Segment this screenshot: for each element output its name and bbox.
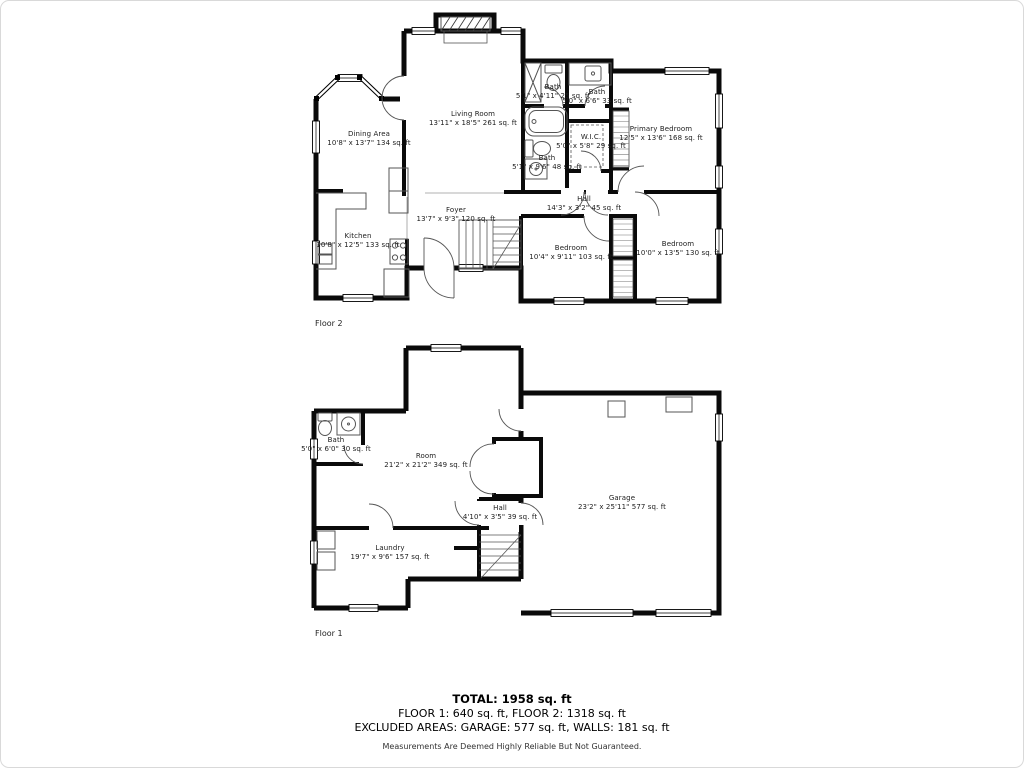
summary-total: TOTAL: 1958 sq. ft bbox=[1, 692, 1023, 706]
floor1-caption: Floor 1 bbox=[315, 629, 343, 638]
dryer-icon bbox=[317, 552, 335, 570]
room-label-bath-f1: Bath5'0" x 6'0" 30 sq. ft bbox=[301, 436, 371, 454]
floor2-caption: Floor 2 bbox=[315, 319, 343, 328]
toilet-icon bbox=[318, 413, 332, 436]
room-label-hall-f1: Hall4'10" x 3'5" 39 sq. ft bbox=[463, 504, 537, 522]
room-label-foyer: Foyer13'7" x 9'3" 120 sq. ft bbox=[417, 206, 496, 224]
room-label-kitchen: Kitchen10'8" x 12'5" 133 sq. ft bbox=[316, 232, 399, 250]
walls bbox=[314, 15, 719, 613]
washer-icon bbox=[317, 531, 335, 549]
bathtub-icon bbox=[525, 107, 567, 136]
summary-floors: FLOOR 1: 640 sq. ft, FLOOR 2: 1318 sq. f… bbox=[1, 707, 1023, 720]
room-label-bedroom-1: Bedroom10'4" x 9'11" 103 sq. ft bbox=[529, 244, 612, 262]
door-openings-2 bbox=[490, 444, 498, 493]
floorplan-page: Living Room13'11" x 18'5" 261 sq. ft Din… bbox=[0, 0, 1024, 768]
room-label-bath-48: Bath5'1" x 9'6" 48 sq. ft bbox=[512, 154, 582, 172]
room-label-bath-33: Bath5'0" x 6'6" 33 sq. ft bbox=[562, 88, 632, 106]
kitchen-counter bbox=[316, 193, 366, 269]
room-label-bedroom-2: Bedroom10'0" x 13'5" 130 sq. ft bbox=[636, 240, 719, 258]
room-label-garage: Garage23'2" x 25'11" 577 sq. ft bbox=[578, 494, 666, 512]
garage-utility-box bbox=[608, 401, 625, 417]
vanity-sink-icon bbox=[569, 63, 611, 85]
summary-excluded: EXCLUDED AREAS: GARAGE: 577 sq. ft, WALL… bbox=[1, 721, 1023, 734]
summary-disclaimer: Measurements Are Deemed Highly Reliable … bbox=[1, 742, 1023, 751]
room-label-room: Room21'2" x 21'2" 349 sq. ft bbox=[384, 452, 467, 470]
room-label-hall-f2: Hall14'3" x 3'2" 45 sq. ft bbox=[547, 195, 621, 213]
room-label-wic: W.I.C.5'0" x 5'8" 29 sq. ft bbox=[556, 133, 626, 151]
room-label-living-room: Living Room13'11" x 18'5" 261 sq. ft bbox=[429, 110, 517, 128]
room-label-primary-bedroom: Primary Bedroom12'5" x 13'6" 168 sq. ft bbox=[619, 125, 702, 143]
garage-utility-box bbox=[666, 397, 692, 412]
sink-icon bbox=[337, 413, 360, 435]
room-label-dining-area: Dining Area10'8" x 13'7" 134 sq. ft bbox=[327, 130, 410, 148]
room-label-laundry: Laundry19'7" x 9'6" 157 sq. ft bbox=[351, 544, 430, 562]
